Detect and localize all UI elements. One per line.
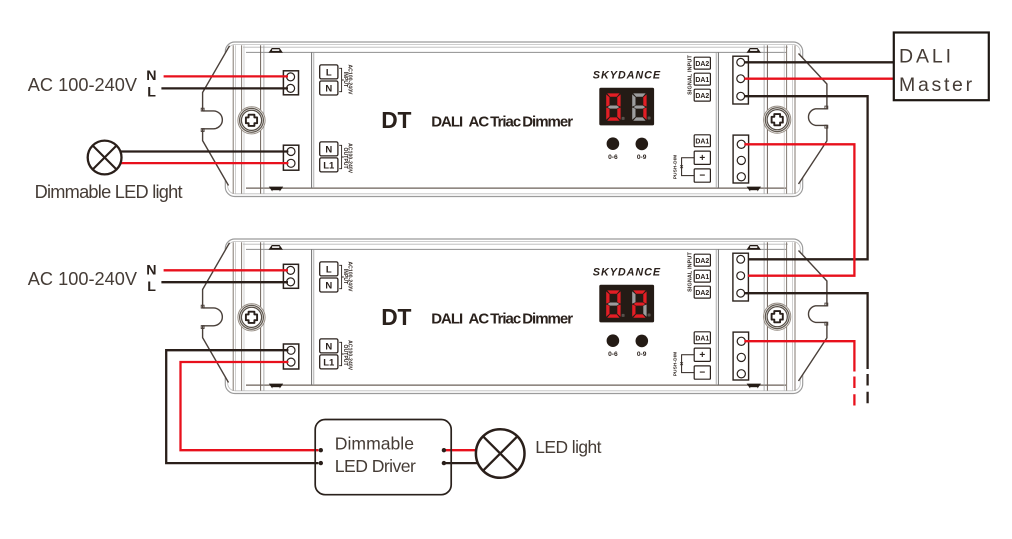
svg-text:+: + — [699, 350, 705, 361]
svg-text:L: L — [326, 265, 332, 276]
svg-text:DA2: DA2 — [695, 290, 709, 297]
svg-text:LED light: LED light — [535, 437, 601, 457]
svg-text:−: − — [699, 368, 705, 379]
svg-text:SIGNAL INPUT: SIGNAL INPUT — [687, 252, 693, 292]
svg-text:PUSH-DIM: PUSH-DIM — [673, 352, 679, 377]
svg-text:AC 100-240V: AC 100-240V — [28, 75, 138, 95]
svg-text:LED Driver: LED Driver — [335, 456, 416, 476]
svg-text:−: − — [699, 171, 705, 182]
svg-text:DALI AC Triac Dimmer: DALI AC Triac Dimmer — [431, 310, 573, 327]
svg-text:OUTPUT: OUTPUT — [342, 345, 348, 366]
svg-text:0-6: 0-6 — [608, 154, 618, 161]
svg-text:Master: Master — [899, 74, 975, 96]
svg-text:DALI: DALI — [899, 46, 954, 68]
svg-text:0-9: 0-9 — [637, 351, 647, 358]
svg-text:+: + — [699, 153, 705, 164]
svg-text:PUSH-DIM: PUSH-DIM — [673, 155, 679, 180]
svg-text:Dimmable: Dimmable — [335, 434, 414, 454]
svg-text:DA1: DA1 — [695, 274, 709, 281]
svg-text:INPUT: INPUT — [342, 269, 348, 285]
svg-text:DT: DT — [381, 304, 411, 330]
svg-text:Dimmable LED light: Dimmable LED light — [35, 182, 183, 202]
svg-text:DA1: DA1 — [695, 336, 709, 343]
svg-text:DA1: DA1 — [695, 77, 709, 84]
svg-text:AC 100-240V: AC 100-240V — [28, 269, 138, 289]
svg-text:L1: L1 — [323, 161, 335, 172]
svg-text:DALI AC Triac Dimmer: DALI AC Triac Dimmer — [431, 113, 573, 130]
svg-text:0-6: 0-6 — [608, 351, 618, 358]
svg-text:DA2: DA2 — [695, 93, 709, 100]
svg-text:DA1: DA1 — [695, 139, 709, 146]
svg-text:L: L — [326, 68, 332, 79]
svg-text:DA2: DA2 — [695, 61, 709, 68]
svg-text:N: N — [325, 342, 332, 353]
svg-text:N: N — [146, 262, 156, 278]
svg-text:L: L — [147, 85, 156, 101]
svg-text:DA2: DA2 — [695, 258, 709, 265]
svg-text:SIGNAL INPUT: SIGNAL INPUT — [687, 55, 693, 95]
svg-text:N: N — [325, 281, 332, 292]
svg-text:N: N — [325, 84, 332, 95]
svg-text:L1: L1 — [323, 358, 335, 369]
svg-text:OUTPUT: OUTPUT — [342, 148, 348, 169]
svg-text:L: L — [147, 279, 156, 295]
svg-text:0-9: 0-9 — [637, 154, 647, 161]
svg-text:INPUT: INPUT — [342, 72, 348, 88]
svg-text:SKYDANCE: SKYDANCE — [593, 266, 661, 278]
svg-text:N: N — [325, 145, 332, 156]
svg-text:N: N — [146, 68, 156, 84]
svg-text:SKYDANCE: SKYDANCE — [593, 69, 661, 81]
svg-text:DT: DT — [381, 107, 411, 133]
